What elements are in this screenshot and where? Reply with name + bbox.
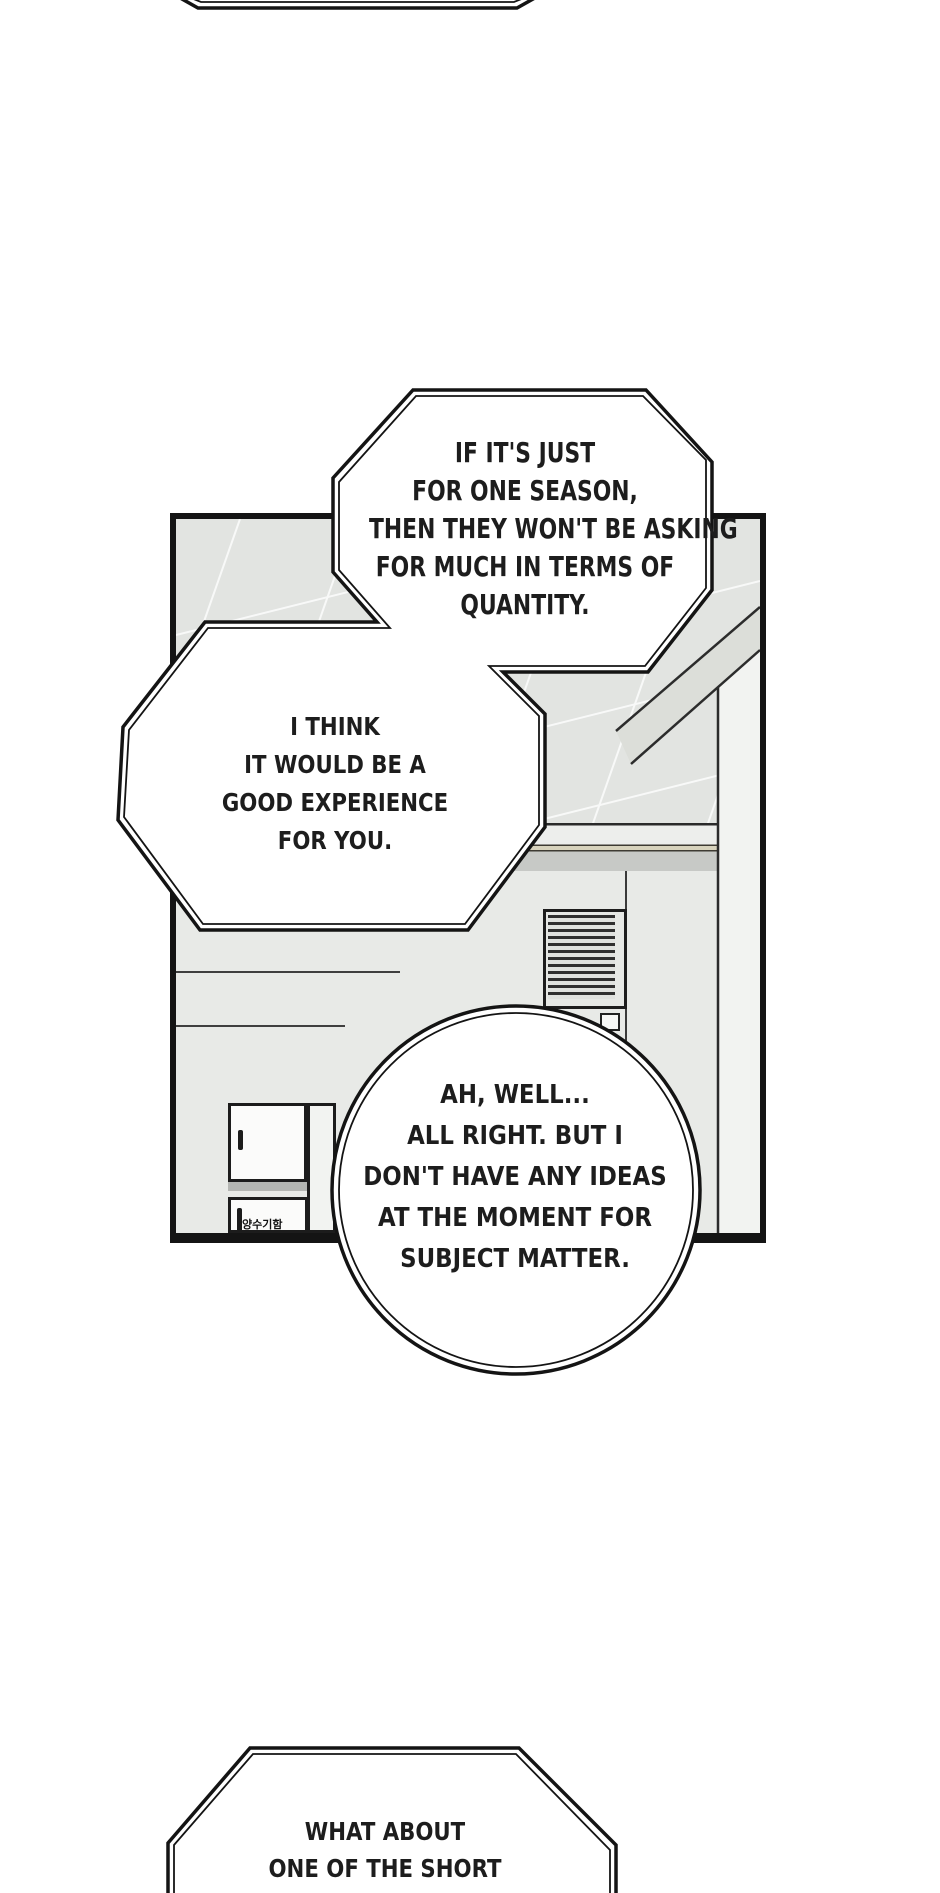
speech-bubble-4-text: WHAT ABOUT ONE OF THE SHORT [215,1813,555,1887]
bubble2-line: IT WOULD BE A [165,746,505,784]
bubble3-line: ALL RIGHT. BUT I [339,1116,691,1157]
speech-bubble-3-text: AH, WELL... ALL RIGHT. BUT I DON'T HAVE … [339,1075,691,1280]
bubble1-line: FOR MUCH IN TERMS OF [369,548,681,586]
bubble3-line: AH, WELL... [339,1075,691,1116]
bubble1-line: THEN THEY WON'T BE ASKING [369,510,681,548]
bubble1-line: FOR ONE SEASON, [369,472,681,510]
speech-bubble-2-text: I THINK IT WOULD BE A GOOD EXPERIENCE FO… [165,708,505,860]
bubble2-line: I THINK [165,708,505,746]
speech-bubble-1-text: IF IT'S JUST FOR ONE SEASON, THEN THEY W… [369,434,681,624]
bubble1-line: IF IT'S JUST [369,434,681,472]
comic-page: 양수기함 IF IT'S JUST FOR ONE SEASON, THEN T… [0,0,940,1893]
bubble3-line: AT THE MOMENT FOR [339,1198,691,1239]
bubble1-line: QUANTITY. [369,586,681,624]
bubble2-line: GOOD EXPERIENCE [165,784,505,822]
speech-bubble-layer [0,0,940,1893]
bubble2-line: FOR YOU. [165,822,505,860]
bubble3-line: DON'T HAVE ANY IDEAS [339,1157,691,1198]
bubble4-line: WHAT ABOUT [215,1813,555,1850]
bubble4-line: ONE OF THE SHORT [215,1850,555,1887]
bubble3-line: SUBJECT MATTER. [339,1239,691,1280]
speech-bubble-top-partial [166,0,549,8]
